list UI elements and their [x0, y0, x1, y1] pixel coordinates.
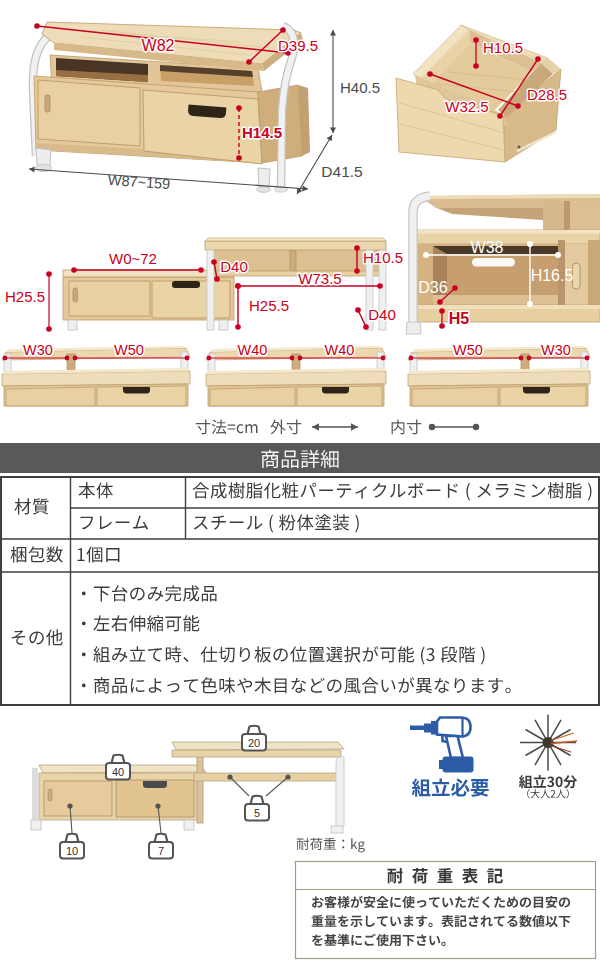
svg-text:W30: W30 [541, 342, 571, 358]
svg-text:H40.5: H40.5 [340, 79, 380, 96]
svg-text:W40: W40 [238, 342, 268, 358]
svg-text:H10.5: H10.5 [363, 249, 403, 266]
svg-text:W50: W50 [453, 342, 483, 358]
svg-text:W87~159: W87~159 [107, 172, 170, 192]
svg-text:D40: D40 [368, 306, 396, 323]
svg-text:W0~72: W0~72 [109, 250, 157, 267]
svg-text:W32.5: W32.5 [445, 98, 488, 115]
svg-text:H25.5: H25.5 [5, 288, 45, 305]
svg-text:H5: H5 [449, 310, 470, 327]
svg-text:H10.5: H10.5 [483, 39, 523, 56]
svg-text:H25.5: H25.5 [249, 297, 289, 314]
svg-text:W30: W30 [23, 342, 53, 358]
svg-text:W73.5: W73.5 [298, 270, 341, 287]
svg-text:7: 7 [158, 845, 164, 857]
svg-text:W50: W50 [114, 342, 144, 358]
svg-text:10: 10 [66, 845, 78, 857]
svg-text:40: 40 [112, 766, 124, 778]
svg-text:D41.5: D41.5 [321, 163, 362, 180]
svg-text:H16.5: H16.5 [531, 267, 574, 284]
svg-text:W82: W82 [142, 37, 175, 54]
svg-text:D39.5: D39.5 [278, 37, 318, 54]
svg-text:W38: W38 [471, 239, 504, 256]
svg-text:5: 5 [254, 807, 260, 819]
svg-text:H14.5: H14.5 [242, 124, 282, 141]
svg-text:20: 20 [248, 737, 260, 749]
svg-text:D36: D36 [418, 279, 447, 296]
svg-text:D28.5: D28.5 [527, 86, 567, 103]
svg-text:D40: D40 [220, 258, 248, 275]
svg-text:W40: W40 [325, 342, 355, 358]
